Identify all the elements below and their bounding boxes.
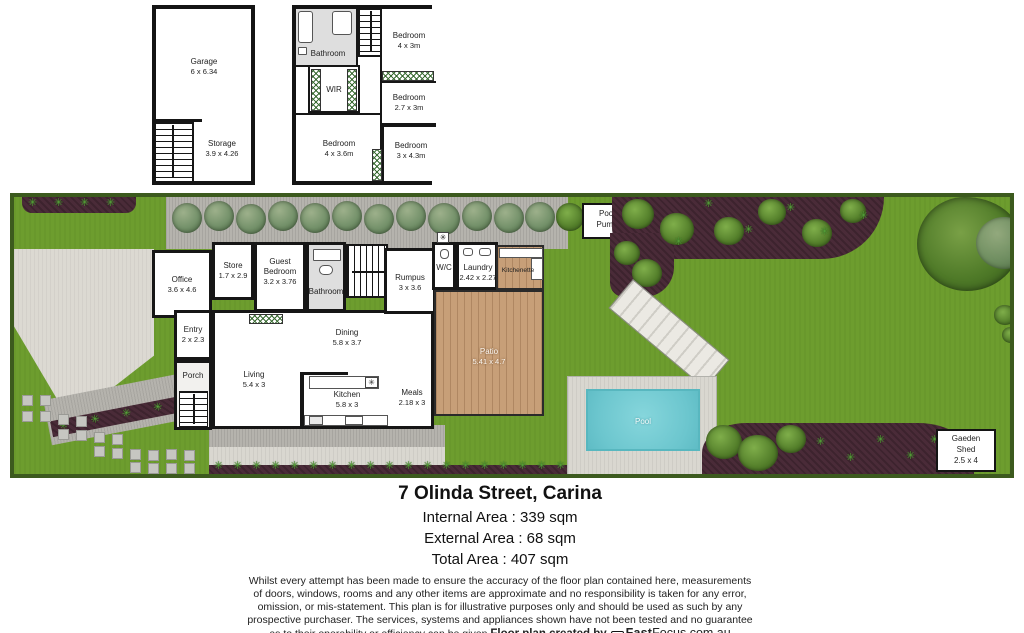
- room-name: Garage: [174, 57, 234, 67]
- room-entry: Entry 2 x 2.3: [174, 310, 212, 360]
- room-label-meals: Meals 2.18 x 3: [389, 388, 435, 407]
- room-name: Patio: [461, 347, 517, 357]
- room-dims: 4 x 3.6m: [314, 149, 364, 158]
- room-name: Meals: [389, 388, 435, 398]
- tree-icon: [462, 201, 492, 231]
- page-title: 7 Olinda Street, Carina: [0, 483, 1000, 505]
- plant-icon: ✳: [106, 198, 115, 208]
- stairs-icon: [358, 9, 382, 57]
- shed-line2: Shed: [938, 445, 994, 456]
- plant-icon: ✳: [480, 461, 489, 471]
- room-name: Porch: [178, 371, 208, 381]
- shed-line1: Gaeden: [938, 434, 994, 445]
- toilet-icon: [440, 249, 449, 259]
- room-label-bedroom-4: Bedroom 3 x 4.3m: [386, 141, 436, 160]
- stepping-stone: [58, 414, 69, 425]
- room-laundry: Laundry 2.42 x 2.27: [456, 242, 498, 290]
- stepping-stone: [166, 463, 177, 474]
- room-label-rumpus: Rumpus 3 x 3.6: [388, 273, 432, 292]
- room-label-porch: Porch: [178, 371, 208, 381]
- stepping-stone: [94, 446, 105, 457]
- room-dims: 1.7 x 2.9: [216, 271, 250, 280]
- total-area: Total Area : 407 sqm: [0, 551, 1000, 568]
- internal-area: Internal Area : 339 sqm: [0, 509, 1000, 526]
- stepping-stone: [40, 411, 51, 422]
- stair-rail: [172, 125, 174, 177]
- disclaimer-line: prospective purchaser. The services, sys…: [0, 614, 1000, 627]
- room-label-bedroom-3: Bedroom 4 x 3.6m: [314, 139, 364, 158]
- room-name: Bedroom: [314, 139, 364, 149]
- room-name: Guest Bedroom: [260, 257, 300, 277]
- room-label-patio: Patio 5.41 x 4.7: [461, 347, 517, 366]
- plant-icon: ✳: [537, 461, 546, 471]
- plant-icon: ✳: [859, 211, 868, 221]
- room-name: Office: [157, 275, 207, 285]
- wardrobe-icon: [347, 69, 357, 111]
- plant-icon: ✳: [366, 461, 375, 471]
- stepping-stone: [22, 411, 33, 422]
- room-name: Bedroom: [386, 141, 436, 151]
- tree-icon: [1002, 327, 1014, 343]
- room-label-entry: Entry 2 x 2.3: [178, 325, 208, 344]
- stepping-stone: [130, 462, 141, 473]
- tree-icon: [364, 204, 394, 234]
- room-dims: 5.4 x 3: [229, 380, 279, 389]
- room-label-bathroom: Bathroom: [302, 49, 354, 59]
- external-area: External Area : 68 sqm: [0, 530, 1000, 547]
- pool-label: Pool: [588, 417, 698, 426]
- site-plan: ✳ ✳ ✳ ✳ ✳ ✳ ✳ ✳ ✳ ✳ ✳ ✳ ✳ ✳ ✳ ✳ ✳ ✳ ✳ ✳ …: [10, 193, 1014, 478]
- stair-rail: [370, 11, 372, 51]
- plant-icon: ✳: [846, 453, 855, 463]
- tree-icon: [706, 425, 742, 459]
- plant-icon: ✳: [461, 461, 470, 471]
- wall: [300, 372, 348, 375]
- room-name: Entry: [178, 325, 208, 335]
- plant-icon: ✳: [704, 199, 713, 209]
- stepping-stone: [112, 434, 123, 445]
- brand-suffix: .com.au: [686, 626, 730, 633]
- tree-icon: [268, 201, 298, 231]
- tub-icon: [479, 248, 491, 256]
- room-label-kitchenette: Kitchenette: [496, 267, 540, 275]
- plant-icon: ✳: [252, 461, 261, 471]
- ground-floor-house: Office 3.6 x 4.6 Store 1.7 x 2.9 Guest B…: [149, 242, 569, 432]
- plant-icon: ✳: [309, 461, 318, 471]
- vanity-icon: [313, 249, 341, 261]
- plant-icon: ✳: [385, 461, 394, 471]
- stepping-stone: [112, 448, 123, 459]
- garage-building-plan: Garage 6 x 6.34 Storage 3.9 x 4.26: [152, 5, 255, 185]
- room-dims: 2.42 x 2.27: [459, 273, 497, 282]
- room-name: WIR: [322, 85, 346, 95]
- plant-icon: ✳: [90, 414, 101, 426]
- brand-light: Focus: [652, 626, 686, 633]
- stepping-stone: [184, 450, 195, 461]
- tree-icon: [172, 203, 202, 233]
- room-name: Kitchenette: [496, 267, 540, 275]
- disclaimer-line: Whilst every attempt has been made to en…: [0, 575, 1000, 588]
- plant-icon: ✳: [290, 461, 299, 471]
- stair-rail: [352, 271, 386, 273]
- tree-icon: [622, 199, 654, 229]
- sink-icon: [319, 265, 333, 275]
- room-label-dining: Dining 5.8 x 3.7: [322, 328, 372, 347]
- disclaimer-last-line: as to their operability or efficiency ca…: [0, 627, 1000, 633]
- bathtub-icon: [298, 11, 313, 43]
- disclaimer-line-text: as to their operability or efficiency ca…: [269, 628, 487, 633]
- tree-icon: [776, 425, 806, 453]
- plant-icon: ✳: [121, 408, 132, 420]
- room-bedroom-3: Bedroom 4 x 3.6m: [296, 113, 382, 181]
- plant-icon: ✳: [347, 461, 356, 471]
- room-store: Store 1.7 x 2.9: [212, 242, 254, 300]
- room-dims: 5.8 x 3.7: [322, 338, 372, 347]
- plant-icon: ✳: [744, 225, 753, 235]
- room-name: Storage: [190, 139, 254, 149]
- tree-icon: [396, 201, 426, 231]
- room-label-bedroom-2: Bedroom 2.7 x 3m: [384, 93, 434, 112]
- stairs-icon: [156, 121, 194, 181]
- disclaimer-line: omission, or mis-statement. This plan is…: [0, 601, 1000, 614]
- sink-icon: [345, 416, 363, 425]
- room-bathroom-ground: Bathroom: [306, 242, 346, 312]
- room-bedroom-4: Bedroom 3 x 4.3m: [382, 125, 436, 181]
- disclaimer-line: of doors, windows, rooms and any other i…: [0, 588, 1000, 601]
- stepping-stone: [40, 395, 51, 406]
- washer-icon: [463, 248, 473, 256]
- room-name: Bathroom: [305, 287, 347, 297]
- plant-icon: ✳: [328, 461, 337, 471]
- patio-deck: Patio 5.41 x 4.7: [434, 290, 544, 416]
- room-dims: 4 x 3m: [384, 41, 434, 50]
- plant-icon: ✳: [28, 198, 37, 208]
- plant-icon: ✳: [214, 461, 223, 471]
- room-dims: 5.41 x 4.7: [461, 357, 517, 366]
- room-name: Bedroom: [384, 31, 434, 41]
- room-label-guest-bedroom: Guest Bedroom 3.2 x 3.76: [260, 257, 300, 286]
- stairs-icon: [179, 391, 208, 427]
- stair-rail: [193, 394, 195, 424]
- stepping-stone: [76, 430, 87, 441]
- room-bathroom-upper: Bathroom: [296, 9, 358, 67]
- plant-icon: ✳: [423, 461, 432, 471]
- stairs-icon: [346, 244, 388, 298]
- room-name: Rumpus: [388, 273, 432, 283]
- credit-text: Floor plan created by: [490, 628, 606, 633]
- tree-icon: [525, 202, 555, 232]
- tree-icon: [994, 305, 1014, 325]
- room-name: Living: [229, 370, 279, 380]
- room-rumpus: Rumpus 3 x 3.6: [384, 248, 436, 314]
- room-label-living: Living 5.4 x 3: [229, 370, 279, 389]
- stepping-stone: [148, 463, 159, 474]
- plant-icon: ✳: [556, 461, 565, 471]
- stepping-stone: [184, 463, 195, 474]
- room-label-storage: Storage 3.9 x 4.26: [190, 139, 254, 158]
- footer: 7 Olinda Street, Carina Internal Area : …: [0, 483, 1000, 633]
- room-label-office: Office 3.6 x 4.6: [157, 275, 207, 294]
- tree-icon: [494, 203, 524, 233]
- room-dims: 5.8 x 3: [322, 400, 372, 409]
- kitchenette-counter: [499, 248, 543, 258]
- room-label-wc: W/C: [433, 263, 455, 273]
- room-dims: 6 x 6.34: [174, 67, 234, 76]
- room-dims: 2 x 2.3: [178, 335, 208, 344]
- plant-icon: ✳: [820, 227, 829, 237]
- tree-icon: [556, 203, 584, 231]
- plant-icon: ✳: [442, 461, 451, 471]
- room-name: Laundry: [459, 263, 497, 273]
- plant-icon: ✳: [233, 461, 242, 471]
- plant-icon: ✳: [499, 461, 508, 471]
- room-dims: 2.7 x 3m: [384, 103, 434, 112]
- room-name: Bathroom: [302, 49, 354, 59]
- room-porch: Porch: [174, 360, 212, 430]
- plant-icon: ✳: [80, 198, 89, 208]
- disclaimer: Whilst every attempt has been made to en…: [0, 575, 1000, 633]
- plant-icon: ✳: [404, 461, 413, 471]
- wardrobe-icon: [372, 149, 382, 181]
- room-bedroom-2: Bedroom 2.7 x 3m: [380, 81, 436, 125]
- plant-icon: ✳: [518, 461, 527, 471]
- plant-icon: ✳: [876, 435, 885, 445]
- plant-icon: ✳: [786, 203, 795, 213]
- room-label-bathroom-ground: Bathroom: [305, 287, 347, 297]
- wardrobe-icon: [311, 69, 321, 111]
- plant-icon: ✳: [54, 198, 63, 208]
- fan-icon: ✳: [365, 377, 378, 388]
- room-dims: 2.18 x 3: [389, 398, 435, 407]
- upper-floor-plan: Bathroom Bedroom 4 x 3m WIR Bedroom: [292, 5, 432, 185]
- room-label-store: Store 1.7 x 2.9: [216, 261, 250, 280]
- tree-icon: [738, 435, 778, 471]
- room-wc: W/C: [432, 242, 456, 290]
- stepping-stone: [130, 449, 141, 460]
- room-name: Kitchen: [322, 390, 372, 400]
- tree-icon: [236, 204, 266, 234]
- pool: Pool: [586, 389, 700, 451]
- stepping-stone: [94, 432, 105, 443]
- room-kitchenette: Kitchenette: [496, 245, 544, 290]
- room-wir: WIR: [308, 65, 360, 113]
- room-dims: 3.2 x 3.76: [260, 277, 300, 286]
- brand-name: FastFocus.com.au: [626, 626, 731, 633]
- tree-icon: [300, 203, 330, 233]
- stepping-stone: [58, 429, 69, 440]
- room-name: W/C: [433, 263, 455, 273]
- tree-icon: [204, 201, 234, 231]
- plant-icon: ✳: [906, 451, 915, 461]
- garden-bed: [22, 197, 136, 213]
- room-guest-bedroom: Guest Bedroom 3.2 x 3.76: [254, 242, 306, 312]
- stove-icon: [309, 416, 323, 425]
- room-name: Store: [216, 261, 250, 271]
- floor-plan-page: Garage 6 x 6.34 Storage 3.9 x 4.26 Bathr…: [0, 0, 1024, 633]
- plant-icon: ✳: [271, 461, 280, 471]
- wardrobe-icon: [249, 314, 283, 324]
- room-dims: 3.6 x 4.6: [157, 285, 207, 294]
- room-label-wir: WIR: [322, 85, 346, 95]
- stepping-stone: [166, 449, 177, 460]
- room-label-kitchen: Kitchen 5.8 x 3: [322, 390, 372, 409]
- stepping-stone: [148, 450, 159, 461]
- stepping-stone: [22, 395, 33, 406]
- tree-icon: [758, 199, 786, 225]
- shed-line3: 2.5 x 4: [938, 456, 994, 467]
- garden-steps: [609, 279, 730, 389]
- tree-icon: [714, 217, 744, 245]
- plant-icon: ✳: [674, 237, 683, 247]
- tree-icon: [332, 201, 362, 231]
- room-office: Office 3.6 x 4.6: [152, 250, 212, 318]
- tree-icon: [428, 203, 460, 235]
- fan-icon: ✳: [437, 232, 449, 243]
- room-label-garage: Garage 6 x 6.34: [174, 57, 234, 76]
- room-dims: 3 x 3.6: [388, 283, 432, 292]
- room-name: Dining: [322, 328, 372, 338]
- room-name: Bedroom: [384, 93, 434, 103]
- room-label-laundry: Laundry 2.42 x 2.27: [459, 263, 497, 282]
- room-label-bedroom-1: Bedroom 4 x 3m: [384, 31, 434, 50]
- wardrobe-icon: [382, 71, 434, 81]
- brand-bold: Fast: [626, 626, 653, 633]
- shower-icon: [332, 11, 352, 35]
- garden-shed-label: Gaeden Shed 2.5 x 4: [936, 429, 996, 472]
- room-dims: 3.9 x 4.26: [190, 149, 254, 158]
- stepping-stone: [76, 416, 87, 427]
- plant-icon: ✳: [816, 437, 825, 447]
- room-dims: 3 x 4.3m: [386, 151, 436, 160]
